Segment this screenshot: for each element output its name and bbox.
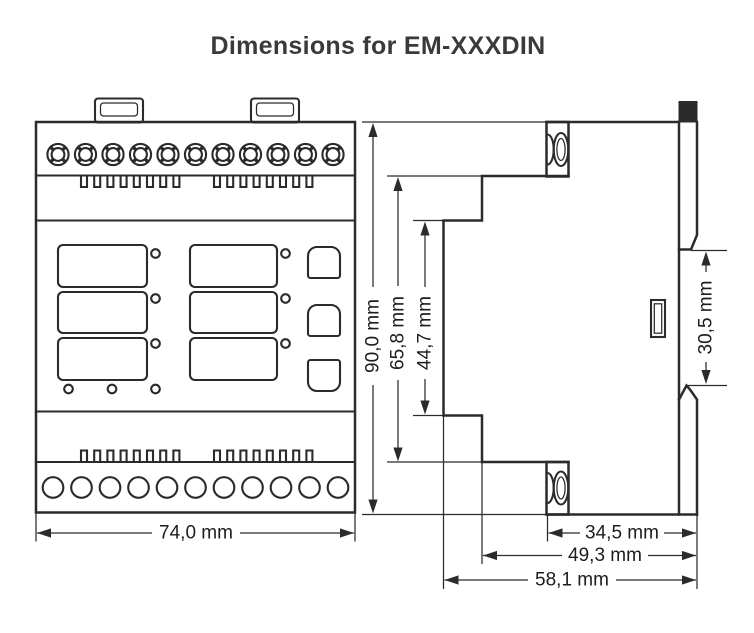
dim-din-rail-section: 30,5 mm xyxy=(696,252,717,385)
side-profile-steps xyxy=(444,176,569,462)
display-window xyxy=(190,338,277,380)
rear-upper-slab xyxy=(679,122,697,250)
din-latch xyxy=(679,386,697,515)
terminal-hole xyxy=(100,477,121,498)
terminal-hole xyxy=(128,477,149,498)
top-terminal-screw-row xyxy=(47,144,343,165)
dim-total-height: 90,0 mm xyxy=(363,123,384,514)
display-window xyxy=(58,245,147,287)
led-indicators xyxy=(64,249,290,393)
led-indicator xyxy=(151,339,160,348)
display-window xyxy=(190,245,277,287)
terminal-screw xyxy=(267,144,288,165)
bottom-vent-comb xyxy=(81,451,312,463)
side-bottom-terminal xyxy=(541,462,568,515)
terminal-hole xyxy=(71,477,92,498)
led-indicator xyxy=(281,249,290,258)
terminal-screw xyxy=(75,144,96,165)
drawing-title: Dimensions for EM-XXXDIN xyxy=(210,32,545,60)
dim-label-width: 74,0 mm xyxy=(159,523,233,544)
dim-label-body-depth: 49,3 mm xyxy=(568,545,642,566)
dim-label-total-height: 90,0 mm xyxy=(363,299,384,373)
led-indicator xyxy=(281,339,290,348)
mounting-tab-left xyxy=(95,99,143,123)
terminal-hole xyxy=(271,477,292,498)
terminal-hole xyxy=(328,477,349,498)
led-indicator xyxy=(64,385,73,394)
terminal-screw xyxy=(240,144,261,165)
dim-label-front-panel-height: 44,7 mm xyxy=(415,296,436,370)
dim-front-panel-height: 44,7 mm xyxy=(415,222,436,415)
top-vent-comb xyxy=(81,176,312,188)
terminal-hole xyxy=(242,477,263,498)
terminal-hole xyxy=(214,477,235,498)
terminal-screw xyxy=(295,144,316,165)
dim-rear-depth: 34,5 mm xyxy=(549,523,697,544)
display-window xyxy=(58,292,147,333)
dim-label-rear-depth: 34,5 mm xyxy=(585,523,659,544)
led-indicator xyxy=(281,294,290,303)
terminal-screw xyxy=(322,144,343,165)
terminal-hole xyxy=(43,477,64,498)
button-top xyxy=(308,247,340,278)
terminal-screw xyxy=(47,144,68,165)
display-window xyxy=(58,338,147,380)
display-windows xyxy=(58,245,277,380)
terminal-screw xyxy=(130,144,151,165)
terminal-screw xyxy=(157,144,178,165)
din-release-clip xyxy=(679,101,698,123)
led-indicator xyxy=(108,385,117,394)
terminal-screw xyxy=(212,144,233,165)
dim-label-din-rail-section: 30,5 mm xyxy=(696,281,717,355)
dim-front-width: 74,0 mm xyxy=(37,523,354,544)
dim-label-body-height: 65,8 mm xyxy=(388,296,409,370)
dimension-drawing-page: Dimensions for EM-XXXDIN xyxy=(0,0,754,633)
dim-body-depth: 49,3 mm xyxy=(483,545,696,566)
mounting-tab-right xyxy=(251,99,299,123)
button-middle xyxy=(308,305,340,336)
dim-label-total-depth: 58,1 mm xyxy=(535,570,609,591)
terminal-hole xyxy=(299,477,320,498)
rail-clip-slot xyxy=(651,300,665,337)
front-buttons xyxy=(308,247,340,391)
bottom-terminal-hole-row xyxy=(43,477,349,498)
terminal-hole xyxy=(157,477,178,498)
display-window xyxy=(190,292,277,333)
led-indicator xyxy=(151,385,160,394)
side-view xyxy=(444,101,698,515)
terminal-screw xyxy=(185,144,206,165)
button-bottom xyxy=(308,360,340,391)
front-view xyxy=(36,99,355,513)
led-indicator xyxy=(151,294,160,303)
terminal-screw xyxy=(102,144,123,165)
technical-drawing: Dimensions for EM-XXXDIN xyxy=(0,0,754,633)
dim-total-depth: 58,1 mm xyxy=(445,570,697,591)
dim-body-height: 65,8 mm xyxy=(388,177,409,462)
led-indicator xyxy=(151,249,160,258)
side-top-terminal xyxy=(541,122,568,177)
terminal-hole xyxy=(185,477,206,498)
